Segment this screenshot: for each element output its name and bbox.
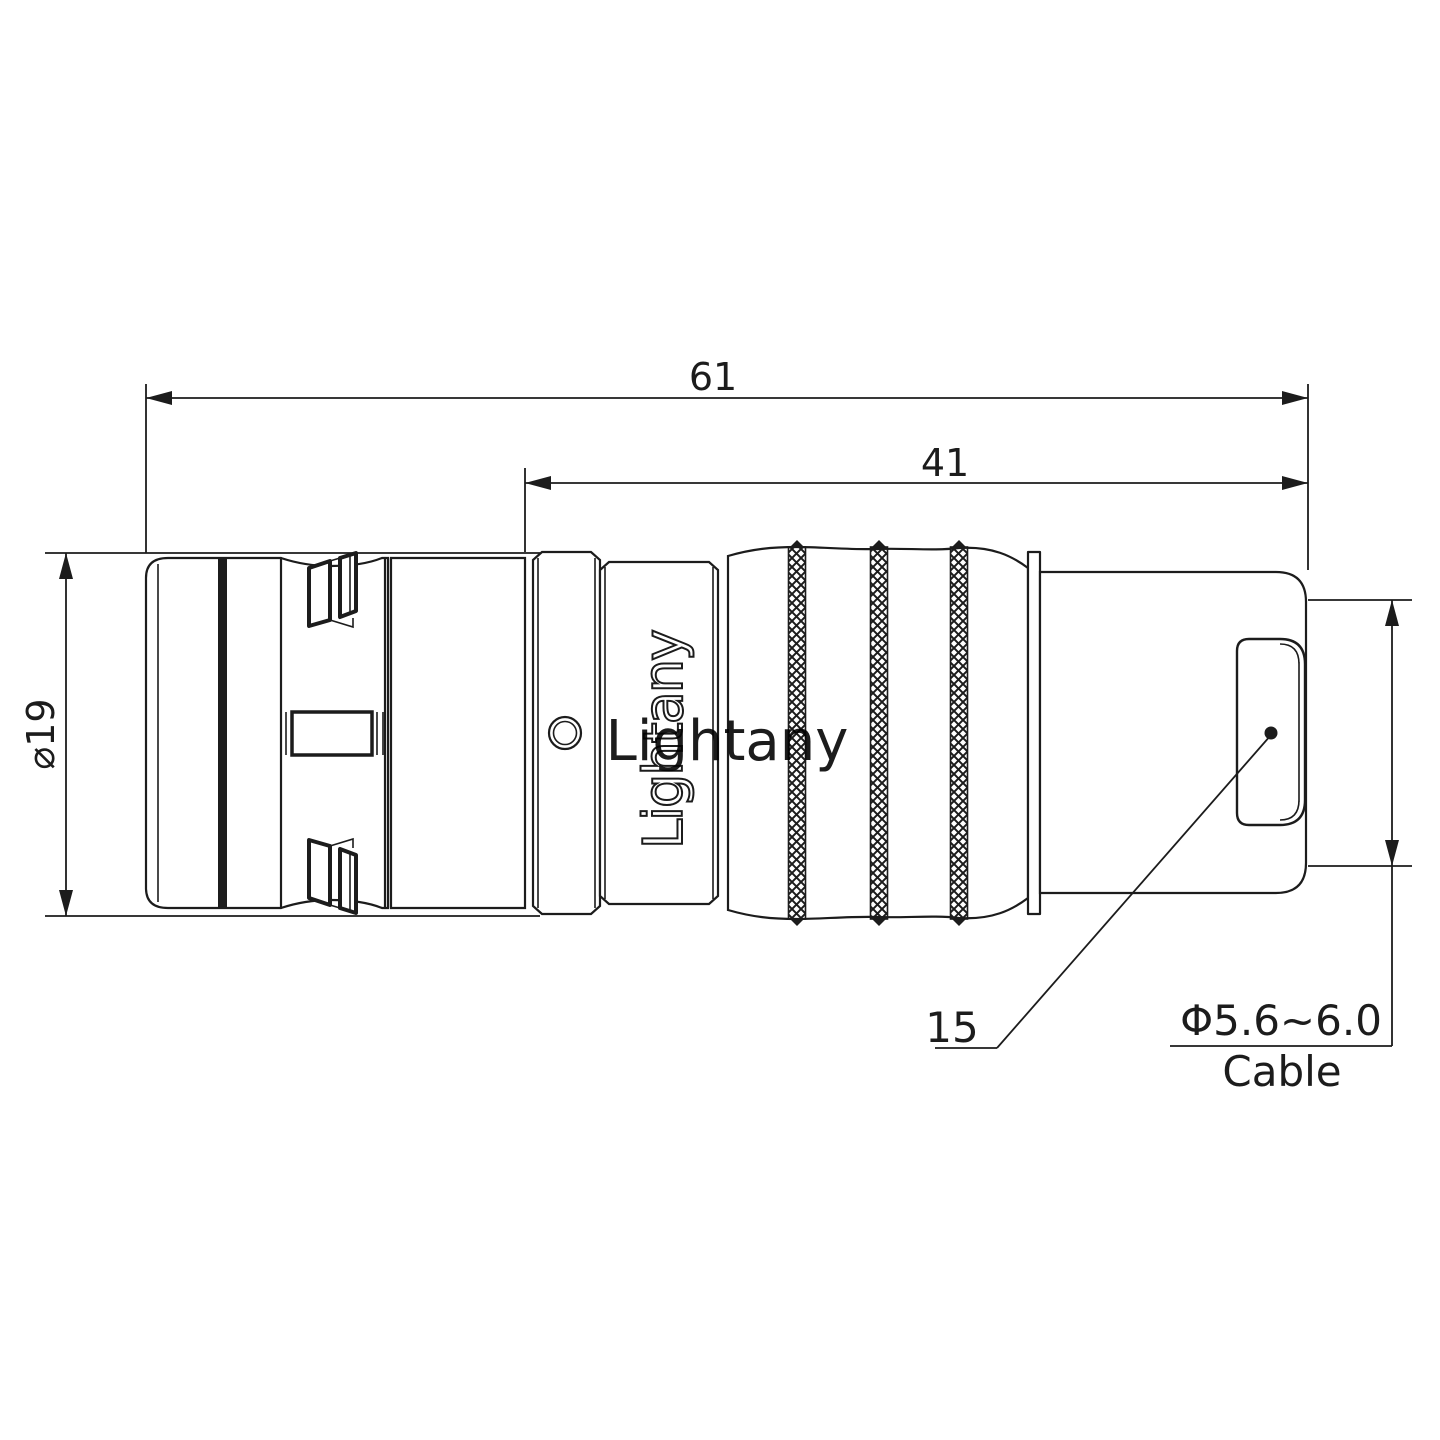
- latch-middle-rect: [292, 712, 372, 755]
- front-shell-black-band: [218, 558, 227, 908]
- rear-housing: [1040, 572, 1306, 893]
- rear-flange: [1028, 552, 1040, 914]
- latch-middle-band: [286, 712, 383, 755]
- knurl-band-3-pattern: [951, 547, 968, 919]
- latch-top-right-panel: [340, 553, 356, 617]
- rear-flange-fill: [1028, 552, 1040, 914]
- cable-bushing: [1237, 639, 1305, 825]
- front-shell: [146, 553, 391, 913]
- technical-drawing-page: Lightany: [0, 0, 1440, 1440]
- callout-15-text: 15: [925, 1003, 978, 1052]
- connector-drawing: Lightany: [0, 0, 1440, 1440]
- latch-bottom-right-panel: [340, 849, 356, 913]
- vent-ring-section: [533, 552, 600, 914]
- latch-top-left-panel: [309, 561, 330, 626]
- dim-body-length-text: 41: [921, 441, 969, 485]
- latch-bottom-left-panel: [309, 840, 330, 905]
- cable-word-text: Cable: [1222, 1047, 1341, 1096]
- barrel-section: [391, 558, 525, 908]
- dim-shell-diameter-text: ⌀19: [19, 698, 63, 769]
- knurl-band-3: [951, 540, 968, 926]
- dim-overall-length-text: 61: [689, 355, 737, 399]
- cable-entry-point-dot: [1265, 727, 1278, 740]
- knurl-band-2-pattern: [871, 547, 888, 919]
- vent-ring-outline: [533, 552, 600, 914]
- cable-diameter-text: Φ5.6~6.0: [1180, 996, 1382, 1045]
- brand-watermark-text: Lightany: [606, 709, 849, 774]
- knurl-band-2: [871, 540, 888, 926]
